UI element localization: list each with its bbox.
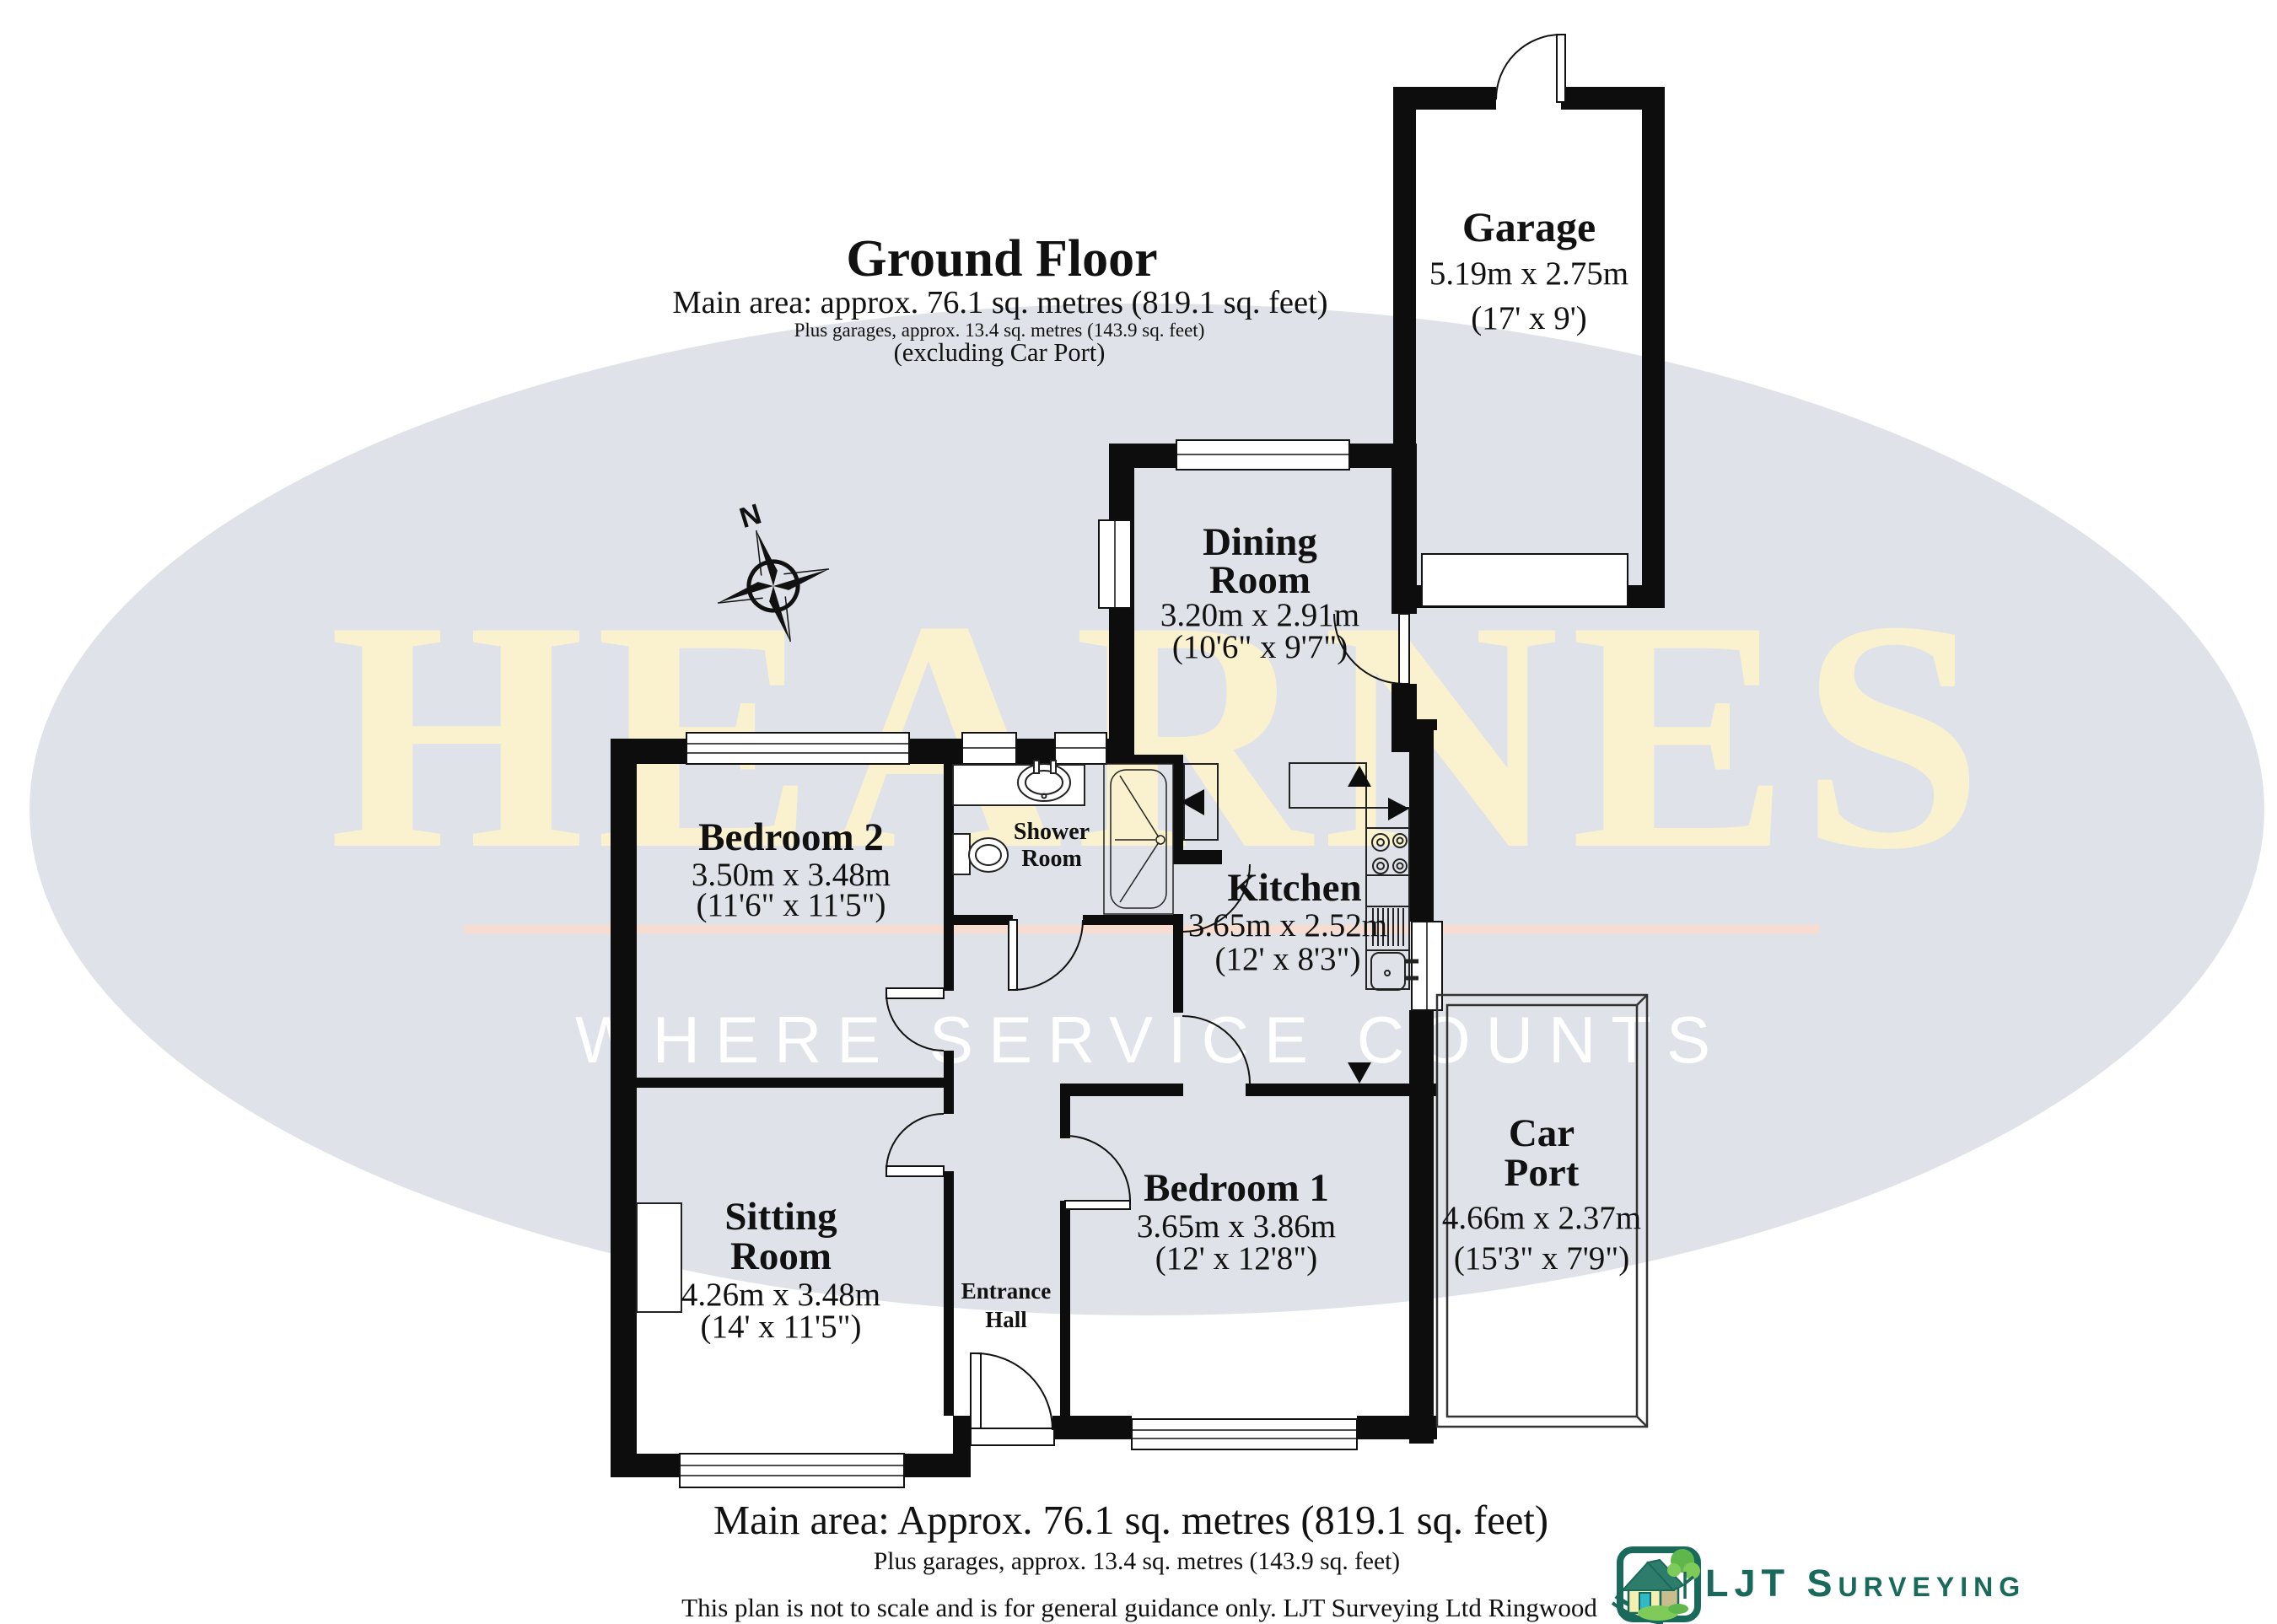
svg-text:5.19m x 2.75m: 5.19m x 2.75m: [1429, 255, 1628, 292]
svg-text:(12' x 12'8"): (12' x 12'8"): [1155, 1240, 1317, 1277]
svg-text:(17' x 9'): (17' x 9'): [1471, 300, 1587, 336]
svg-text:Main area: approx. 76.1 sq. me: Main area: approx. 76.1 sq. metres (819.…: [672, 285, 1327, 320]
svg-text:Port: Port: [1505, 1151, 1580, 1195]
svg-text:4.66m x 2.37m: 4.66m x 2.37m: [1442, 1200, 1641, 1236]
svg-text:(11'6" x 11'5"): (11'6" x 11'5"): [697, 887, 886, 923]
svg-text:Sitting: Sitting: [724, 1195, 837, 1239]
svg-text:WHERE SERVICE COUNTS: WHERE SERVICE COUNTS: [575, 1003, 1725, 1077]
svg-text:Kitchen: Kitchen: [1227, 866, 1361, 910]
svg-text:This plan is not to scale and: This plan is not to scale and is for gen…: [681, 1593, 1597, 1622]
svg-text:Bedroom 2: Bedroom 2: [698, 815, 884, 859]
svg-text:Car: Car: [1509, 1111, 1575, 1155]
svg-text:Room: Room: [730, 1234, 832, 1278]
svg-text:Shower: Shower: [1014, 819, 1090, 845]
svg-text:Garage: Garage: [1462, 203, 1596, 250]
svg-text:(15'3" x 7'9"): (15'3" x 7'9"): [1454, 1240, 1629, 1277]
svg-text:LJT Surveying: LJT Surveying: [1705, 1562, 2026, 1605]
svg-text:3.20m x 2.91m: 3.20m x 2.91m: [1160, 597, 1359, 633]
svg-text:(10'6" x 9'7"): (10'6" x 9'7"): [1172, 629, 1348, 665]
svg-text:Main area: Approx. 76.1 sq. me: Main area: Approx. 76.1 sq. metres (819.…: [713, 1498, 1548, 1543]
svg-text:Room: Room: [1021, 846, 1082, 872]
svg-text:Bedroom 1: Bedroom 1: [1144, 1166, 1329, 1210]
svg-text:3.65m x 2.52m: 3.65m x 2.52m: [1188, 907, 1387, 944]
svg-text:(14' x 11'5"): (14' x 11'5"): [700, 1309, 861, 1345]
svg-text:(12' x 8'3"): (12' x 8'3"): [1215, 941, 1361, 977]
svg-text:3.65m x 3.86m: 3.65m x 3.86m: [1137, 1208, 1336, 1245]
svg-text:Ground Floor: Ground Floor: [846, 230, 1157, 288]
svg-text:4.26m x 3.48m: 4.26m x 3.48m: [681, 1277, 880, 1313]
svg-text:Plus garages, approx. 13.4 sq.: Plus garages, approx. 13.4 sq. metres (1…: [874, 1548, 1400, 1575]
svg-text:Room: Room: [1209, 558, 1311, 602]
svg-text:(excluding Car Port): (excluding Car Port): [894, 338, 1106, 367]
svg-text:Hall: Hall: [985, 1307, 1027, 1332]
svg-text:Entrance: Entrance: [961, 1278, 1052, 1304]
